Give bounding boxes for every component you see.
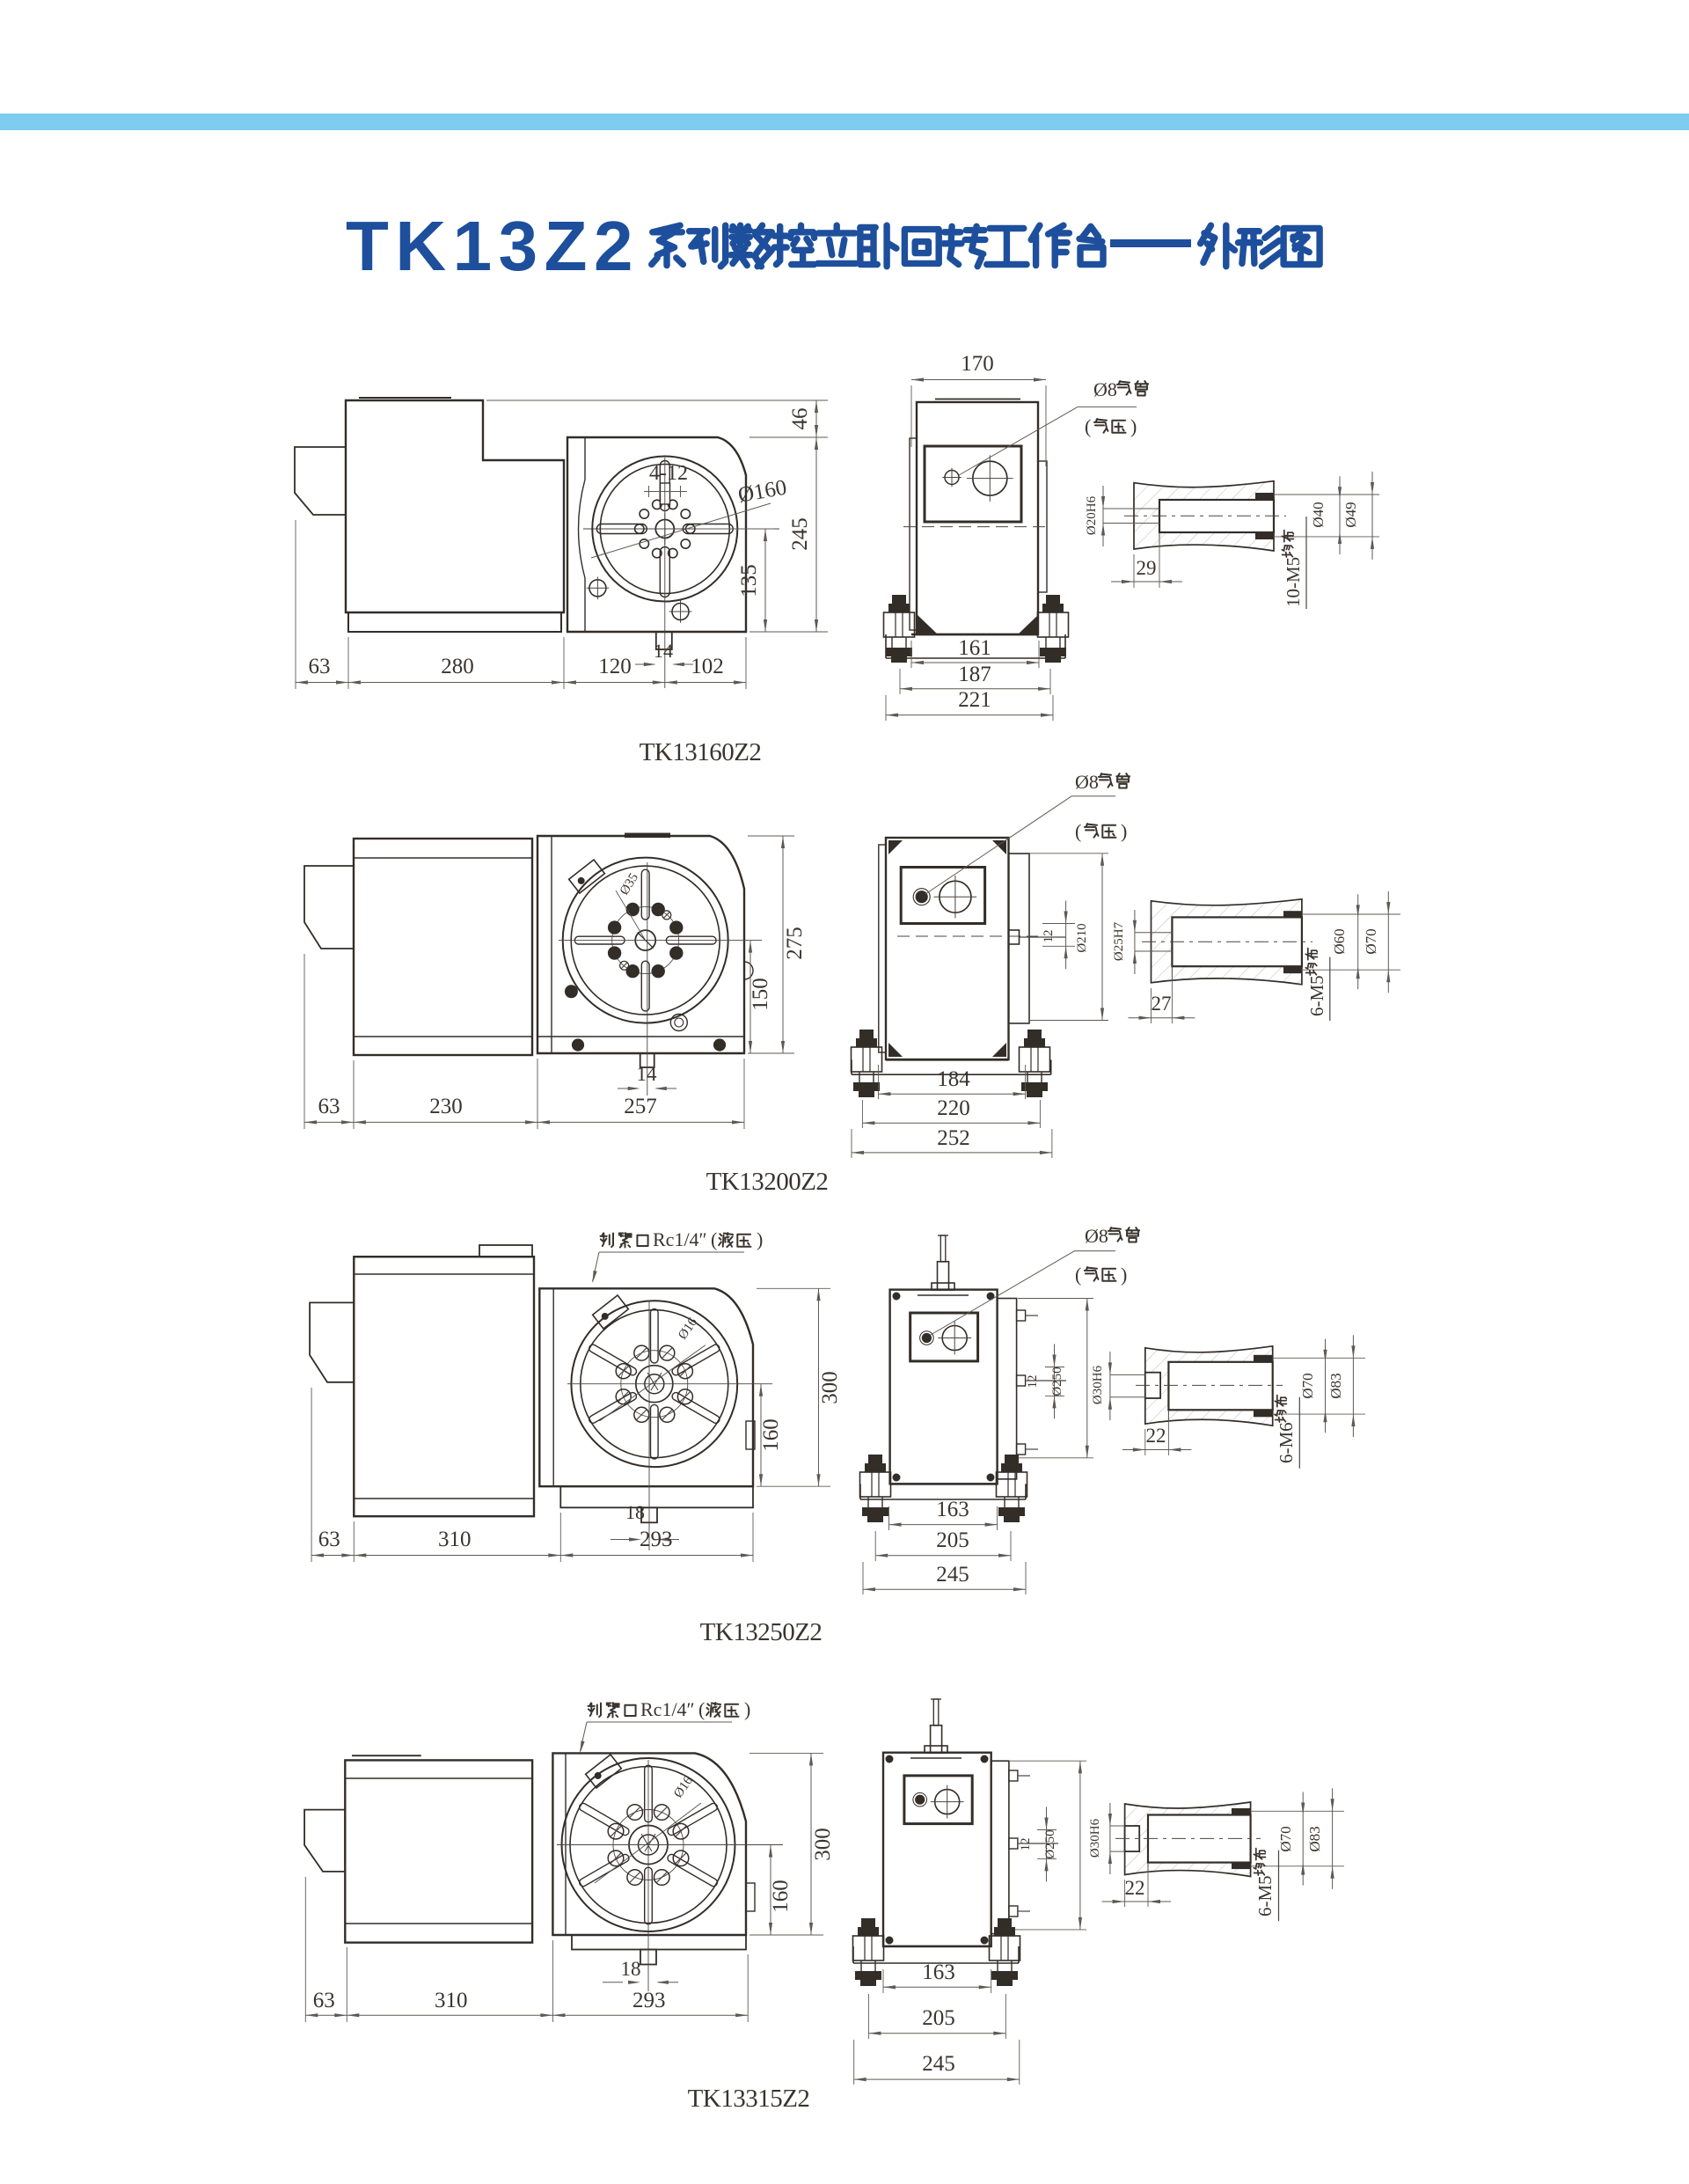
- svg-text:): ): [744, 1698, 750, 1720]
- svg-text:220: 220: [937, 1096, 970, 1120]
- svg-text:Ø49: Ø49: [1342, 502, 1359, 527]
- svg-text:14: 14: [637, 1063, 658, 1085]
- svg-text:): ): [1121, 820, 1127, 842]
- svg-text:163: 163: [922, 1960, 955, 1984]
- svg-text:12: 12: [1026, 1375, 1040, 1389]
- svg-text:300: 300: [811, 1828, 835, 1861]
- svg-text:): ): [1130, 415, 1137, 437]
- svg-text:Ø40: Ø40: [1310, 502, 1327, 527]
- svg-text:12: 12: [1019, 1838, 1033, 1851]
- svg-text:Ø8: Ø8: [1085, 1225, 1108, 1247]
- svg-text:310: 310: [435, 1989, 468, 2012]
- svg-text:102: 102: [691, 655, 724, 678]
- svg-text:TK13200Z2: TK13200Z2: [706, 1168, 829, 1196]
- svg-text:6-M5: 6-M5: [1306, 975, 1327, 1016]
- svg-text:187: 187: [958, 663, 991, 686]
- svg-text:161: 161: [958, 636, 991, 660]
- svg-text:221: 221: [958, 688, 991, 712]
- svg-text:Ø250: Ø250: [1043, 1829, 1057, 1858]
- svg-text:Ø30H6: Ø30H6: [1091, 1365, 1105, 1404]
- svg-text:160: 160: [769, 1880, 793, 1913]
- svg-text:293: 293: [632, 1989, 666, 2012]
- svg-text:63: 63: [318, 1095, 340, 1118]
- svg-text:Ø70: Ø70: [1299, 1373, 1316, 1398]
- svg-text:275: 275: [783, 927, 807, 960]
- svg-text:252: 252: [937, 1126, 970, 1150]
- svg-text:300: 300: [818, 1371, 842, 1404]
- svg-text:22: 22: [1146, 1425, 1166, 1447]
- svg-text:205: 205: [922, 2006, 955, 2030]
- svg-text:10-M5: 10-M5: [1283, 557, 1304, 607]
- svg-text:Ø70: Ø70: [1363, 928, 1379, 954]
- svg-text:TK13Z2: TK13Z2: [346, 207, 640, 285]
- svg-text:Ø25H7: Ø25H7: [1112, 921, 1126, 961]
- svg-text:18: 18: [625, 1501, 645, 1523]
- svg-text:163: 163: [936, 1498, 969, 1521]
- svg-text:120: 120: [598, 655, 632, 678]
- svg-text:Ø210: Ø210: [1075, 923, 1089, 952]
- svg-text:(: (: [711, 1228, 717, 1250]
- svg-text:245: 245: [922, 2052, 955, 2076]
- svg-text:(: (: [1085, 415, 1091, 437]
- svg-text:): ): [1121, 1264, 1127, 1286]
- svg-text:63: 63: [313, 1989, 335, 2012]
- svg-text:6-M5: 6-M5: [1254, 1875, 1276, 1916]
- svg-text:Ø70: Ø70: [1277, 1826, 1294, 1851]
- svg-text:TK13315Z2: TK13315Z2: [688, 2085, 810, 2113]
- svg-text:(: (: [1075, 1264, 1081, 1286]
- svg-text:46: 46: [788, 408, 812, 430]
- svg-text:29: 29: [1137, 557, 1157, 579]
- svg-text:27: 27: [1152, 993, 1172, 1015]
- svg-text:Ø8: Ø8: [1093, 378, 1117, 400]
- svg-text:245: 245: [788, 517, 812, 551]
- svg-text:205: 205: [936, 1528, 969, 1552]
- svg-text:Ø60: Ø60: [1331, 928, 1348, 954]
- svg-text:22: 22: [1125, 1877, 1145, 1899]
- svg-text:Ø20H6: Ø20H6: [1085, 495, 1099, 535]
- svg-text:230: 230: [429, 1095, 463, 1118]
- svg-text:Rc1/4″: Rc1/4″: [653, 1228, 707, 1250]
- svg-text:Ø8: Ø8: [1075, 771, 1099, 793]
- svg-text:(: (: [1075, 820, 1081, 842]
- svg-text:310: 310: [438, 1528, 472, 1551]
- svg-text:Ø250: Ø250: [1050, 1367, 1064, 1396]
- svg-text:14: 14: [654, 640, 673, 662]
- svg-text:(: (: [698, 1698, 705, 1720]
- svg-text:4-12: 4-12: [649, 462, 688, 485]
- svg-text:150: 150: [749, 978, 772, 1011]
- svg-text:160: 160: [759, 1418, 783, 1452]
- svg-text:Ø83: Ø83: [1306, 1826, 1323, 1851]
- svg-text:6-M6: 6-M6: [1276, 1422, 1297, 1463]
- svg-text:280: 280: [441, 655, 474, 678]
- svg-text:12: 12: [1042, 930, 1056, 943]
- svg-text:257: 257: [624, 1095, 657, 1118]
- svg-text:135: 135: [737, 564, 761, 597]
- svg-text:Rc1/4″: Rc1/4″: [640, 1698, 695, 1720]
- svg-text:TK13250Z2: TK13250Z2: [700, 1618, 823, 1646]
- svg-text:): ): [757, 1228, 763, 1250]
- svg-text:170: 170: [961, 352, 994, 376]
- svg-text:63: 63: [309, 655, 331, 678]
- svg-text:245: 245: [936, 1563, 969, 1587]
- svg-text:TK13160Z2: TK13160Z2: [640, 738, 762, 766]
- svg-text:184: 184: [937, 1067, 970, 1091]
- svg-text:293: 293: [640, 1528, 673, 1551]
- svg-text:18: 18: [621, 1958, 641, 1980]
- svg-text:Ø83: Ø83: [1327, 1373, 1344, 1398]
- svg-text:63: 63: [318, 1528, 340, 1551]
- svg-text:Ø30H6: Ø30H6: [1088, 1818, 1102, 1858]
